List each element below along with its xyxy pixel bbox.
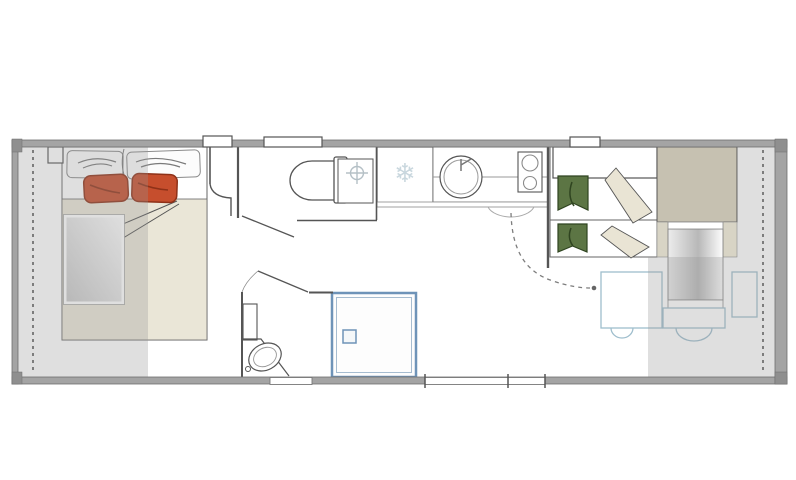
bathroom-shelf bbox=[243, 304, 257, 340]
overlay-zone-left bbox=[18, 147, 148, 377]
floor-plan: ❄ bbox=[0, 0, 796, 480]
swing-path-dot bbox=[592, 286, 597, 291]
counter-front-band bbox=[377, 202, 548, 207]
entrance-door bbox=[425, 378, 545, 385]
corner-cap bbox=[12, 139, 22, 152]
window-top-1 bbox=[203, 136, 232, 147]
bed3-pillow bbox=[668, 222, 723, 229]
freezer-icon: ❄ bbox=[394, 159, 416, 189]
overlay-zone-right-strip bbox=[737, 147, 777, 377]
shower-drain bbox=[343, 330, 356, 343]
wall-bottom bbox=[12, 377, 787, 384]
window-top-2 bbox=[264, 137, 322, 147]
hob bbox=[518, 152, 542, 192]
wardrobe bbox=[657, 147, 737, 222]
floor-plan-drawing: ❄ bbox=[0, 0, 796, 480]
basin-tap bbox=[246, 367, 251, 372]
water-heater-cabinet bbox=[338, 159, 373, 203]
corner-cap bbox=[12, 372, 22, 384]
wall-left bbox=[12, 140, 18, 384]
kitchen: ❄ bbox=[377, 147, 548, 217]
window-top-3 bbox=[570, 137, 600, 147]
wall-top bbox=[12, 140, 787, 147]
corner-cap bbox=[775, 139, 787, 152]
window-bottom-bathroom bbox=[270, 378, 312, 385]
wc-room bbox=[290, 157, 373, 203]
corner-cap bbox=[775, 372, 787, 384]
overlay-zone-right-bottom bbox=[648, 257, 737, 377]
toilet-bowl bbox=[290, 161, 334, 200]
headboard-shelf bbox=[553, 147, 657, 178]
wall-right bbox=[775, 140, 787, 384]
